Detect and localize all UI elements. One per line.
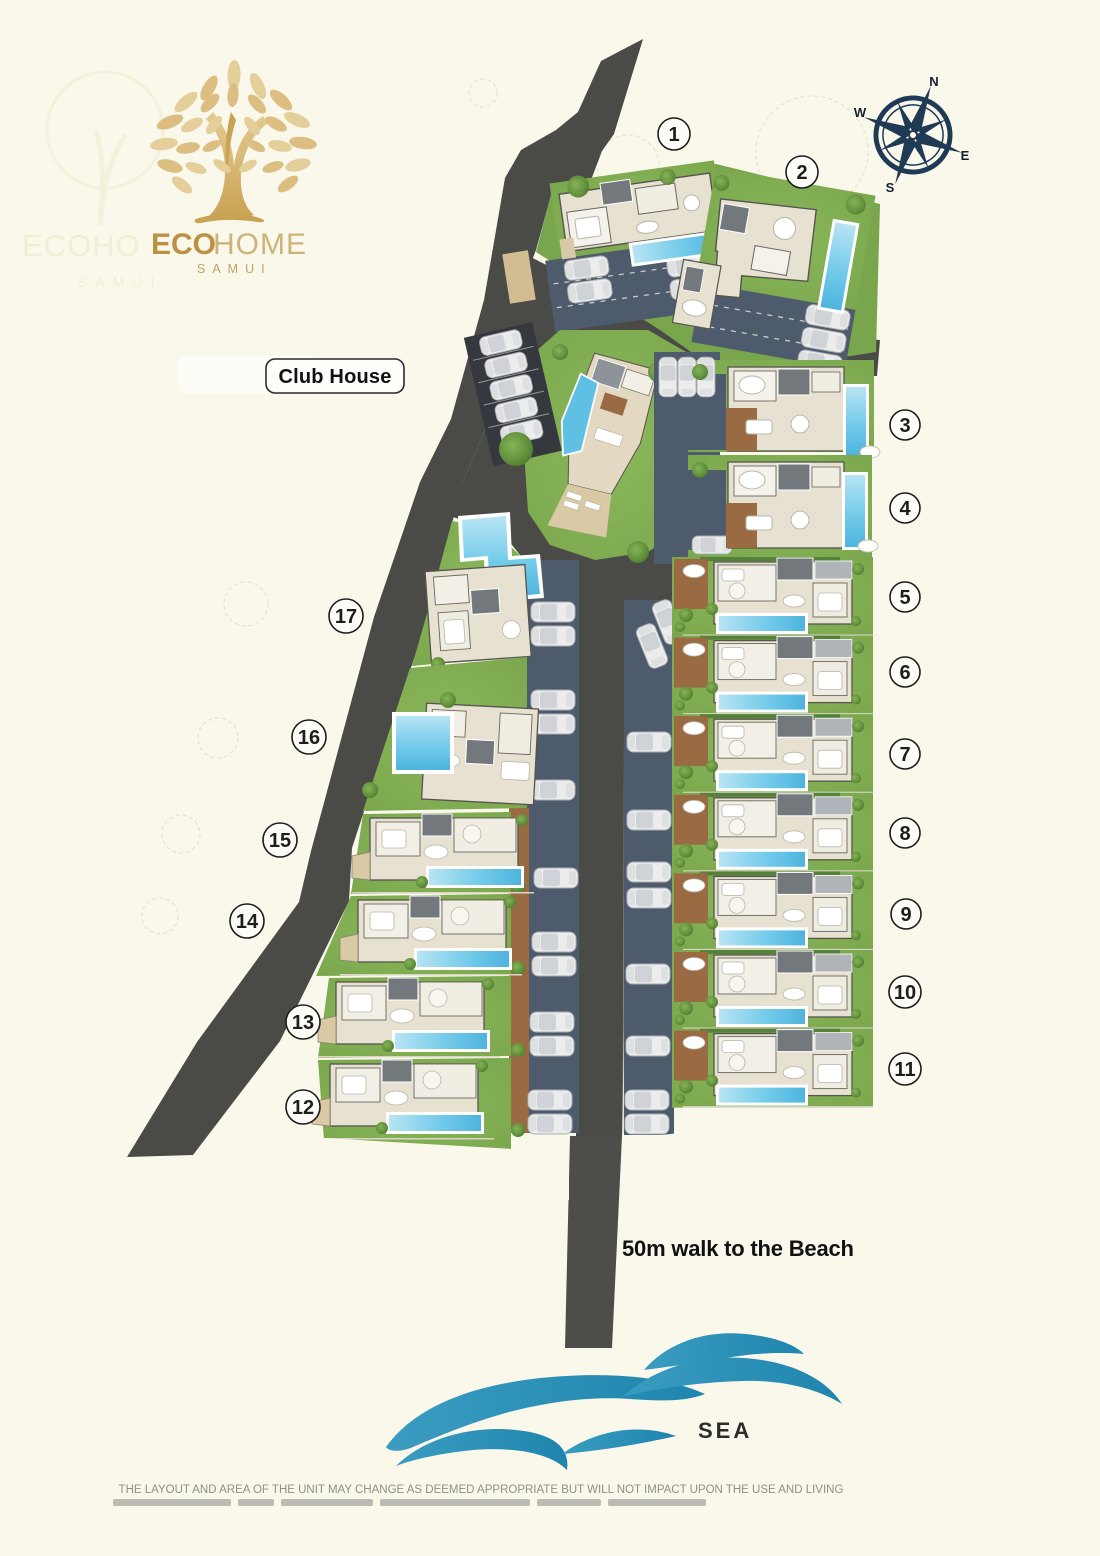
svg-text:1: 1 [668,124,679,146]
svg-text:13: 13 [292,1012,314,1034]
svg-text:6: 6 [899,662,910,684]
svg-text:11: 11 [894,1059,915,1081]
svg-text:10: 10 [894,982,916,1004]
svg-text:SEA: SEA [698,1418,752,1443]
svg-text:17: 17 [335,606,357,628]
svg-text:HOME: HOME [213,228,307,261]
svg-text:12: 12 [292,1097,314,1119]
svg-text:8: 8 [899,823,910,845]
svg-text:THE LAYOUT AND AREA OF THE UNI: THE LAYOUT AND AREA OF THE UNIT MAY CHAN… [119,1484,844,1496]
svg-text:16: 16 [298,727,320,749]
svg-text:N: N [929,74,938,89]
svg-text:Club House: Club House [278,366,391,388]
svg-text:7: 7 [899,744,910,766]
svg-text:ECO: ECO [151,228,216,261]
svg-text:SAMUI: SAMUI [78,274,162,290]
svg-text:W: W [854,105,867,120]
svg-text:50m walk to the Beach: 50m walk to the Beach [622,1236,854,1261]
svg-text:S: S [886,180,895,195]
svg-text:15: 15 [269,830,291,852]
svg-text:4: 4 [899,498,911,520]
svg-text:2: 2 [796,162,807,184]
svg-text:ECOHO: ECOHO [22,228,141,263]
svg-text:5: 5 [899,587,910,609]
svg-text:E: E [961,148,970,163]
svg-text:9: 9 [900,904,911,926]
svg-text:3: 3 [899,415,910,437]
svg-text:14: 14 [236,911,259,933]
svg-text:SAMUI: SAMUI [197,262,272,276]
